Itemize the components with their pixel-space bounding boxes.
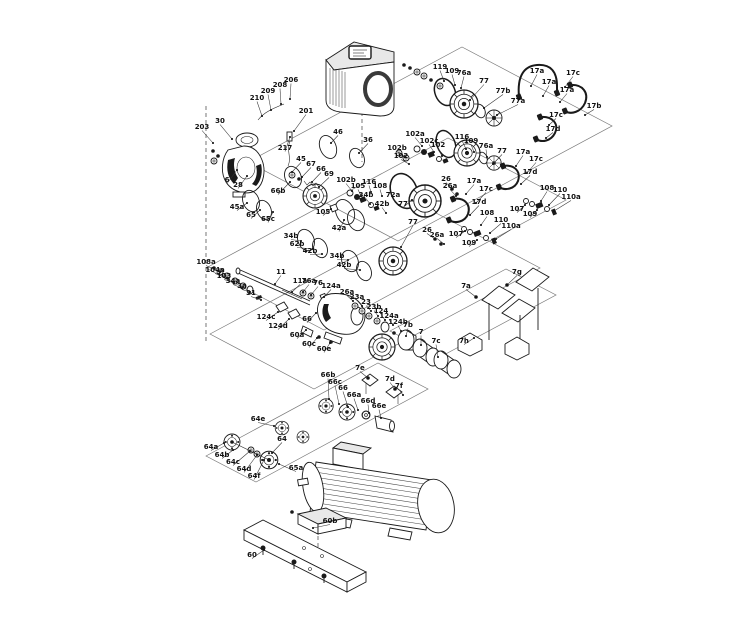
callout-anchor-dot xyxy=(261,115,263,117)
part-callout-46: 46 xyxy=(333,128,343,136)
callout-anchor-dot xyxy=(553,210,555,212)
callout-anchor-dot xyxy=(338,403,340,405)
part-callout-26a: 26a xyxy=(443,182,458,190)
callout-anchor-dot xyxy=(486,156,488,158)
callout-anchor-dot xyxy=(273,425,275,427)
part-callout-64a: 64a xyxy=(204,443,219,451)
part-callout-60e: 60e xyxy=(317,345,332,353)
callout-anchor-dot xyxy=(274,283,276,285)
part-callout-124a: 124a xyxy=(321,282,341,290)
part-callout-17d: 17d xyxy=(472,198,487,206)
callout-anchor-dot xyxy=(249,450,251,452)
part-callout-108a: 108a xyxy=(196,258,216,266)
callout-leader-line xyxy=(311,287,318,296)
part-callout-28: 28 xyxy=(233,181,243,189)
part-callout-217: 217 xyxy=(278,144,293,152)
callout-leader-line xyxy=(292,163,301,173)
callout-leader-line xyxy=(303,285,309,293)
callout-leader-line xyxy=(292,285,300,293)
callout-leader-line xyxy=(302,168,311,178)
baseplate xyxy=(244,520,366,592)
part-callout-77: 77 xyxy=(497,147,507,155)
callout-leader-line xyxy=(258,423,274,427)
callout-leader-line xyxy=(354,399,358,411)
part-callout-77: 77 xyxy=(398,200,408,208)
top-pipe xyxy=(258,104,284,120)
part-callout-77b: 77b xyxy=(496,87,511,95)
callout-anchor-dot xyxy=(347,406,349,408)
diagram-canvas: 2033021020920820620121762846364567666966… xyxy=(0,0,752,632)
part-callout-77a: 77a xyxy=(511,97,526,105)
coupling-guard-assembly xyxy=(458,268,549,360)
callout-anchor-dot xyxy=(343,219,345,221)
part-callout-17c: 17c xyxy=(529,155,543,163)
callout-leader-line xyxy=(319,178,329,188)
callout-leader-line xyxy=(220,125,232,140)
callout-anchor-dot xyxy=(351,190,353,192)
callout-anchor-dot xyxy=(421,145,423,147)
part-callout-77: 77 xyxy=(479,77,489,85)
callout-anchor-dot xyxy=(400,330,402,332)
callout-anchor-dot xyxy=(455,195,457,197)
part-callout-17a: 17a xyxy=(560,86,575,94)
part-callout-124d: 124d xyxy=(268,322,288,330)
callout-leader-line xyxy=(257,102,262,117)
callout-anchor-dot xyxy=(385,212,387,214)
callout-anchor-dot xyxy=(515,165,517,167)
part-callout-7d: 7d xyxy=(385,375,395,383)
callout-leader-line xyxy=(481,217,487,226)
callout-leader-line xyxy=(268,95,271,111)
callout-anchor-dot xyxy=(495,238,497,240)
callout-anchor-dot xyxy=(231,138,233,140)
callout-anchor-dot xyxy=(263,549,265,551)
callout-anchor-dot xyxy=(367,377,369,379)
callout-anchor-dot xyxy=(259,209,261,211)
wear-plate-124d xyxy=(288,309,300,319)
callout-anchor-dot xyxy=(305,329,307,331)
callout-leader-line xyxy=(541,192,547,202)
callout-leader-line xyxy=(466,290,476,298)
part-callout-109: 109 xyxy=(523,210,538,218)
callout-anchor-dot xyxy=(212,142,214,144)
part-callout-7e: 7e xyxy=(355,364,365,372)
callout-anchor-dot xyxy=(433,151,435,153)
callout-leader-line xyxy=(516,156,523,167)
callout-anchor-dot xyxy=(260,299,262,301)
callout-anchor-dot xyxy=(441,155,443,157)
coupling-parts xyxy=(224,399,395,469)
callout-anchor-dot xyxy=(329,342,331,344)
callout-anchor-dot xyxy=(358,152,360,154)
callout-anchor-dot xyxy=(496,114,498,116)
callout-anchor-dot xyxy=(483,107,485,109)
callout-anchor-dot xyxy=(302,291,304,293)
callout-anchor-dot xyxy=(506,284,508,286)
callout-anchor-dot xyxy=(301,176,303,178)
callout-leader-line xyxy=(549,194,560,206)
callout-anchor-dot xyxy=(223,442,225,444)
part-callout-109: 109 xyxy=(464,137,479,145)
part-callout-110a: 110a xyxy=(561,193,581,201)
callout-anchor-dot xyxy=(271,452,273,454)
callout-anchor-dot xyxy=(469,99,471,101)
callout-anchor-dot xyxy=(381,195,383,197)
part-callout-34b: 34b xyxy=(359,191,374,199)
part-callout-110a: 110a xyxy=(501,222,521,230)
part-callout-17c: 17c xyxy=(479,185,493,193)
part-callout-102: 102 xyxy=(394,152,409,160)
part-callout-7h: 7h xyxy=(459,337,469,345)
part-callout-60c: 60c xyxy=(302,340,316,348)
part-callout-17a: 17a xyxy=(542,78,557,86)
callout-anchor-dot xyxy=(328,398,330,400)
callout-anchor-dot xyxy=(289,136,291,138)
callout-anchor-dot xyxy=(359,269,361,271)
callout-leader-line xyxy=(531,75,537,87)
callout-anchor-dot xyxy=(310,294,312,296)
part-callout-7a: 7a xyxy=(461,282,471,290)
part-callout-109: 109 xyxy=(462,239,477,247)
callout-anchor-dot xyxy=(443,243,445,245)
part-callout-42b: 42b xyxy=(337,261,352,269)
callout-leader-line xyxy=(202,131,213,144)
part-callout-7g: 7g xyxy=(512,268,522,276)
part-callout-69: 69 xyxy=(324,170,334,178)
part-callout-64e: 64e xyxy=(251,415,266,423)
part-callout-105: 105 xyxy=(316,208,331,216)
callout-anchor-dot xyxy=(460,87,462,89)
callout-leader-line xyxy=(294,115,306,132)
callout-leader-line xyxy=(496,230,511,240)
part-callout-6: 6 xyxy=(225,176,230,184)
part-callout-66b: 66b xyxy=(271,187,286,195)
callout-leader-line xyxy=(484,95,503,109)
callout-leader-line xyxy=(290,84,291,100)
callout-anchor-dot xyxy=(369,203,371,205)
part-callout-17d: 17d xyxy=(523,168,538,176)
callout-anchor-dot xyxy=(330,142,332,144)
callout-anchor-dot xyxy=(559,101,561,103)
callout-anchor-dot xyxy=(277,311,279,313)
part-callout-45: 45 xyxy=(296,155,306,163)
callout-anchor-dot xyxy=(475,296,477,298)
part-callout-36: 36 xyxy=(363,136,373,144)
callout-leader-line xyxy=(380,190,382,197)
callout-anchor-dot xyxy=(469,214,471,216)
part-callout-203: 203 xyxy=(195,123,210,131)
callout-anchor-dot xyxy=(524,204,526,206)
part-callout-11: 11 xyxy=(276,268,286,276)
part-callout-102: 102 xyxy=(431,141,446,149)
part-callout-107: 107 xyxy=(449,230,464,238)
vfd-display xyxy=(349,46,371,59)
part-callout-7c: 7c xyxy=(431,337,440,345)
part-callout-210: 210 xyxy=(250,94,265,102)
callout-leader-line xyxy=(272,443,282,454)
part-callout-42b: 42b xyxy=(375,200,390,208)
part-callout-72a: 72a xyxy=(386,191,401,199)
part-callout-31: 31 xyxy=(246,289,256,297)
callout-anchor-dot xyxy=(321,253,323,255)
callout-anchor-dot xyxy=(272,211,274,213)
callout-anchor-dot xyxy=(323,296,325,298)
motor-stool-and-sleeves xyxy=(398,330,461,378)
callout-leader-line xyxy=(466,185,474,195)
callout-anchor-dot xyxy=(318,186,320,188)
part-callout-34b: 34b xyxy=(330,252,345,260)
callout-anchor-dot xyxy=(289,181,291,183)
part-callout-60a: 60a xyxy=(290,331,305,339)
part-callout-17d: 17d xyxy=(546,125,561,133)
callout-anchor-dot xyxy=(454,84,456,86)
part-callout-17a: 17a xyxy=(467,177,482,185)
callout-anchor-dot xyxy=(288,318,290,320)
part-callout-42a: 42a xyxy=(332,224,347,232)
callout-anchor-dot xyxy=(293,130,295,132)
callout-anchor-dot xyxy=(437,356,439,358)
exploded-parts-diagram: 2033021020920820620121762846364567666966… xyxy=(0,0,752,632)
part-callout-17c: 17c xyxy=(566,69,580,77)
callout-leader-line xyxy=(490,224,501,234)
callout-anchor-dot xyxy=(368,412,370,414)
callout-anchor-dot xyxy=(540,200,542,202)
callout-anchor-dot xyxy=(548,204,550,206)
callout-leader-line xyxy=(360,372,368,379)
part-callout-17c: 17c xyxy=(549,111,563,119)
callout-leader-line xyxy=(275,276,281,285)
part-callout-42b: 42b xyxy=(303,247,318,255)
callout-leader-line xyxy=(497,105,518,116)
callout-anchor-dot xyxy=(316,337,318,339)
part-callout-66e: 66e xyxy=(372,402,387,410)
part-callout-108: 108 xyxy=(480,209,495,217)
callout-anchor-dot xyxy=(489,232,491,234)
callout-anchor-dot xyxy=(289,98,291,100)
callout-anchor-dot xyxy=(278,463,280,465)
callout-anchor-dot xyxy=(443,80,445,82)
callout-anchor-dot xyxy=(315,312,317,314)
callout-anchor-dot xyxy=(312,527,314,529)
callout-leader-line xyxy=(312,173,321,183)
part-callout-17b: 17b xyxy=(587,102,602,110)
callout-anchor-dot xyxy=(520,183,522,185)
callout-anchor-dot xyxy=(464,230,466,232)
callout-anchor-dot xyxy=(236,169,238,171)
part-callout-124c: 124c xyxy=(257,313,276,321)
callout-anchor-dot xyxy=(246,175,248,177)
callout-anchor-dot xyxy=(545,137,547,139)
callout-anchor-dot xyxy=(357,409,359,411)
callout-anchor-dot xyxy=(380,417,382,419)
part-callout-7f: 7f xyxy=(395,382,404,390)
callout-anchor-dot xyxy=(465,148,467,150)
part-callout-76a: 76a xyxy=(457,69,472,77)
callout-anchor-dot xyxy=(280,103,282,105)
part-callout-77: 77 xyxy=(408,218,418,226)
main-motor xyxy=(290,442,458,540)
part-callout-201: 201 xyxy=(299,107,314,115)
callout-leader-line xyxy=(461,77,464,89)
callout-anchor-dot xyxy=(408,163,410,165)
callout-leader-line xyxy=(543,86,549,97)
part-callout-45a: 45a xyxy=(230,203,245,211)
part-callout-30: 30 xyxy=(215,117,225,125)
cone-105 xyxy=(330,204,338,212)
callout-leader-line xyxy=(507,276,517,286)
callout-leader-line xyxy=(470,206,479,216)
callout-anchor-dot xyxy=(270,109,272,111)
callout-anchor-dot xyxy=(465,193,467,195)
callout-anchor-dot xyxy=(542,95,544,97)
callout-anchor-dot xyxy=(473,151,475,153)
callout-anchor-dot xyxy=(402,394,404,396)
part-callout-76a: 76a xyxy=(479,142,494,150)
callout-anchor-dot xyxy=(476,239,478,241)
callout-anchor-dot xyxy=(400,246,402,248)
callout-anchor-dot xyxy=(232,449,234,451)
callout-anchor-dot xyxy=(256,454,258,456)
vfd-motor-unit xyxy=(326,42,394,116)
callout-anchor-dot xyxy=(420,344,422,346)
part-callout-7b: 7b xyxy=(403,321,413,329)
callout-leader-line xyxy=(359,144,368,154)
callout-anchor-dot xyxy=(411,199,413,201)
motor-shaft-stub xyxy=(298,478,309,486)
part-callout-60: 60 xyxy=(247,551,257,559)
callout-anchor-dot xyxy=(311,181,313,183)
callout-anchor-dot xyxy=(530,85,532,87)
callout-anchor-dot xyxy=(405,335,407,337)
callout-leader-line xyxy=(438,149,442,157)
callout-anchor-dot xyxy=(291,171,293,173)
part-callout-108: 108 xyxy=(373,182,388,190)
part-callout-64: 64 xyxy=(277,435,287,443)
part-callout-60b: 60b xyxy=(323,517,338,525)
part-callout-206: 206 xyxy=(284,76,299,84)
callout-leader-line xyxy=(280,89,281,105)
part-callout-66: 66 xyxy=(302,315,312,323)
callout-anchor-dot xyxy=(330,208,332,210)
callout-anchor-dot xyxy=(246,202,248,204)
part-callout-66a: 66a xyxy=(347,391,362,399)
part-callout-64f: 64f xyxy=(248,472,262,480)
callout-anchor-dot xyxy=(473,337,475,339)
part-callout-65a: 65a xyxy=(289,464,304,472)
callout-leader-line xyxy=(452,75,455,86)
part-callout-65: 65 xyxy=(246,211,256,219)
part-callout-65c: 65c xyxy=(261,215,275,223)
part-callout-7: 7 xyxy=(419,328,424,336)
callout-anchor-dot xyxy=(291,291,293,293)
part-callout-26a: 26a xyxy=(430,231,445,239)
callout-anchor-dot xyxy=(263,459,265,461)
part-callout-102b: 102b xyxy=(387,144,407,152)
part-callout-67: 67 xyxy=(306,160,316,168)
callout-anchor-dot xyxy=(480,224,482,226)
callout-anchor-dot xyxy=(584,114,586,116)
part-callout-34b: 34b xyxy=(284,232,299,240)
callout-anchor-dot xyxy=(492,163,494,165)
part-callout-17a: 17a xyxy=(530,67,545,75)
